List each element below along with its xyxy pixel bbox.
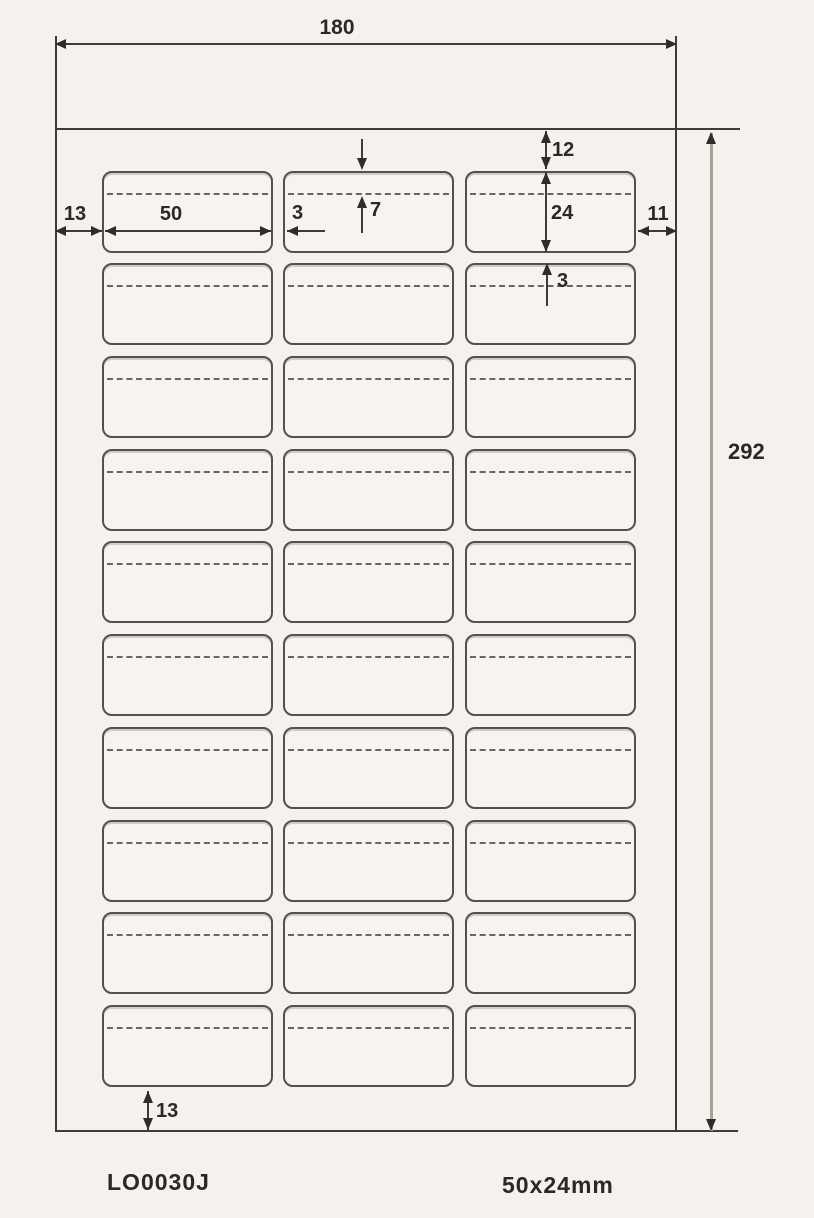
dim-vertical-gap-line xyxy=(546,274,548,306)
perforation-dashed-line xyxy=(470,285,631,287)
dim-margin-bottom-text: 13 xyxy=(156,1100,178,1122)
dim-label-width-arrow-left xyxy=(105,226,116,236)
label-cell xyxy=(465,1005,636,1087)
label-cell xyxy=(102,820,273,902)
label-sheet-diagram: 180 292 13 50 3 7 12 24 11 3 13 LO0030J xyxy=(0,0,814,1218)
perforation-dashed-line xyxy=(107,842,268,844)
dim-sheet-width-text: 180 xyxy=(300,17,374,39)
dim-margin-left-arrow-left xyxy=(55,226,66,236)
label-cell xyxy=(102,634,273,716)
dim-margin-right-text: 11 xyxy=(640,203,676,225)
dim-margin-top-arrow-down xyxy=(541,157,551,169)
dim-margin-right-arrow-left xyxy=(638,226,649,236)
dim-sheet-height-arrow-top xyxy=(706,132,716,144)
label-cell xyxy=(465,541,636,623)
label-cell xyxy=(283,1005,454,1087)
label-cell xyxy=(102,356,273,438)
perforation-dashed-line xyxy=(288,471,449,473)
perforation-dashed-line xyxy=(288,842,449,844)
perforation-dashed-line xyxy=(470,749,631,751)
perforation-dashed-line xyxy=(107,656,268,658)
dim-sheet-height-line xyxy=(710,133,713,1131)
label-cell xyxy=(102,912,273,994)
label-cell xyxy=(283,541,454,623)
dim-dash-offset-lower-line xyxy=(361,207,363,233)
perforation-dashed-line xyxy=(107,378,268,380)
perforation-dashed-line xyxy=(470,842,631,844)
label-cell xyxy=(465,634,636,716)
perforation-dashed-line xyxy=(470,1027,631,1029)
dim-label-width-arrow-right xyxy=(260,226,271,236)
perforation-dashed-line xyxy=(107,285,268,287)
perforation-dashed-line xyxy=(470,471,631,473)
sheet-right-edge xyxy=(675,36,677,1132)
label-cell xyxy=(102,449,273,531)
perforation-dashed-line xyxy=(288,934,449,936)
dim-label-width-line xyxy=(105,230,271,232)
perforation-dashed-line xyxy=(288,563,449,565)
label-cell xyxy=(465,727,636,809)
sheet-left-edge xyxy=(55,36,57,1132)
label-cell xyxy=(283,634,454,716)
perforation-dashed-line xyxy=(470,378,631,380)
dim-margin-bottom-arrow-down xyxy=(143,1118,153,1130)
dim-margin-top-arrow-up xyxy=(541,131,551,143)
label-cell xyxy=(102,727,273,809)
label-cell xyxy=(283,727,454,809)
label-cell xyxy=(465,449,636,531)
perforation-dashed-line xyxy=(288,193,449,195)
dim-sheet-height-text: 292 xyxy=(728,441,765,463)
perforation-dashed-line xyxy=(470,934,631,936)
dim-dash-offset-text: 7 xyxy=(370,199,381,221)
dim-margin-left-text: 13 xyxy=(56,203,94,225)
dim-margin-right-arrow-right xyxy=(666,226,677,236)
perforation-dashed-line xyxy=(288,285,449,287)
dim-label-height-text: 24 xyxy=(551,202,573,224)
dim-horizontal-gap-text: 3 xyxy=(292,202,303,224)
dim-sheet-width-arrow-right xyxy=(666,39,677,49)
label-cell xyxy=(283,820,454,902)
label-cell xyxy=(102,541,273,623)
label-cell xyxy=(465,356,636,438)
sheet-bottom-edge xyxy=(55,1130,738,1132)
dim-horizontal-gap-arrow xyxy=(287,226,298,236)
perforation-dashed-line xyxy=(107,193,268,195)
label-cell xyxy=(283,263,454,345)
dim-margin-left-arrow-right xyxy=(91,226,102,236)
perforation-dashed-line xyxy=(107,749,268,751)
label-cell xyxy=(465,912,636,994)
perforation-dashed-line xyxy=(107,471,268,473)
label-cell xyxy=(465,820,636,902)
label-cell xyxy=(283,171,454,253)
dim-sheet-width-arrow-left xyxy=(55,39,66,49)
perforation-dashed-line xyxy=(107,934,268,936)
sheet-top-edge xyxy=(55,128,740,130)
label-cell xyxy=(102,1005,273,1087)
perforation-dashed-line xyxy=(470,656,631,658)
label-cell xyxy=(283,912,454,994)
perforation-dashed-line xyxy=(470,193,631,195)
label-cell xyxy=(465,263,636,345)
dim-margin-top-text: 12 xyxy=(552,139,574,161)
dim-vertical-gap-text: 3 xyxy=(557,270,568,292)
perforation-dashed-line xyxy=(288,656,449,658)
label-cell xyxy=(102,263,273,345)
perforation-dashed-line xyxy=(107,563,268,565)
dim-sheet-height-arrow-bottom xyxy=(706,1119,716,1131)
dim-label-width-text: 50 xyxy=(146,203,196,225)
perforation-dashed-line xyxy=(107,1027,268,1029)
label-size-text: 50x24mm xyxy=(502,1172,614,1199)
dim-margin-bottom-arrow-up xyxy=(143,1091,153,1103)
perforation-dashed-line xyxy=(288,1027,449,1029)
label-cell xyxy=(283,449,454,531)
perforation-dashed-line xyxy=(288,749,449,751)
product-code-text: LO0030J xyxy=(107,1169,210,1196)
label-cell xyxy=(283,356,454,438)
dim-label-height-arrow-down xyxy=(541,240,551,252)
dim-sheet-width-line xyxy=(55,43,677,45)
perforation-dashed-line xyxy=(288,378,449,380)
dim-label-height-arrow-up xyxy=(541,172,551,184)
dim-dash-offset-arrow-down xyxy=(357,158,367,170)
perforation-dashed-line xyxy=(470,563,631,565)
